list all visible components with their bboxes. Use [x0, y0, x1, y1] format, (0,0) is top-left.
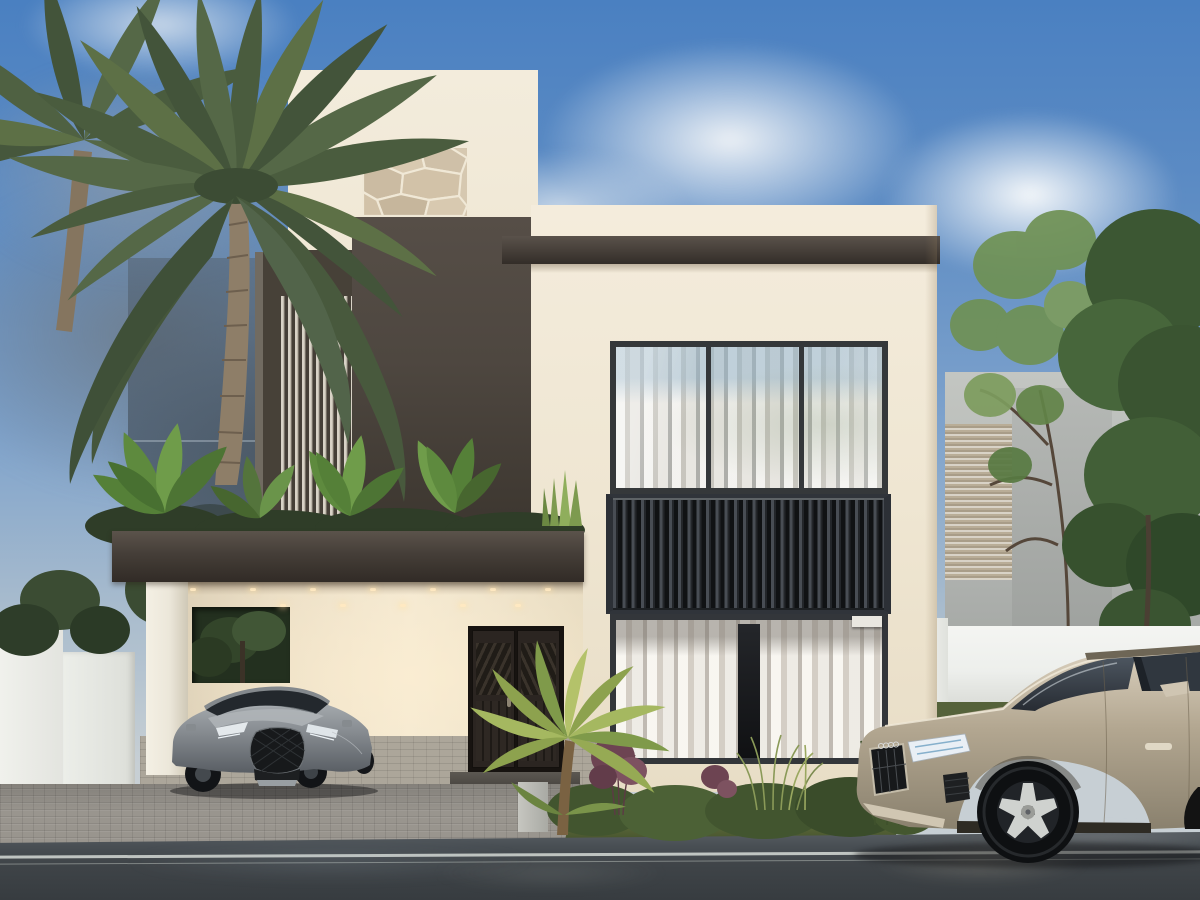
- downlight: [515, 604, 521, 607]
- balcony-slats: [613, 500, 884, 608]
- slender-tree: [950, 210, 1096, 665]
- lexus-suv: [156, 662, 400, 804]
- window-sill-vent: [852, 616, 882, 627]
- beam-shadow: [531, 264, 937, 273]
- downlight: [545, 588, 551, 591]
- lexus-mirror-left: [186, 724, 196, 731]
- balcony-slat-band: [606, 494, 891, 614]
- architectural-render: [0, 0, 1200, 900]
- window-mullion: [799, 347, 804, 488]
- upper-window-reflection: [616, 347, 882, 488]
- big-tree-canopy: [1058, 209, 1200, 661]
- banana-cluster-3: [407, 437, 512, 516]
- audi-grille: [870, 744, 908, 795]
- carport-canopy: [112, 531, 584, 582]
- lexus-mirror-right: [342, 720, 352, 727]
- window-mullion: [706, 347, 711, 488]
- snake-plant: [542, 470, 582, 526]
- downlight: [490, 588, 496, 591]
- upper-window: [610, 341, 888, 494]
- audi-door-handle: [1145, 743, 1172, 750]
- audi-suv: [845, 627, 1200, 889]
- door-palm-plant: [465, 610, 655, 845]
- roof-beam: [502, 236, 940, 264]
- terrace-plants: [95, 418, 590, 545]
- audi-front-wheel: [977, 761, 1079, 863]
- slat-top-highlight: [613, 498, 884, 500]
- road-reflection: [430, 856, 670, 890]
